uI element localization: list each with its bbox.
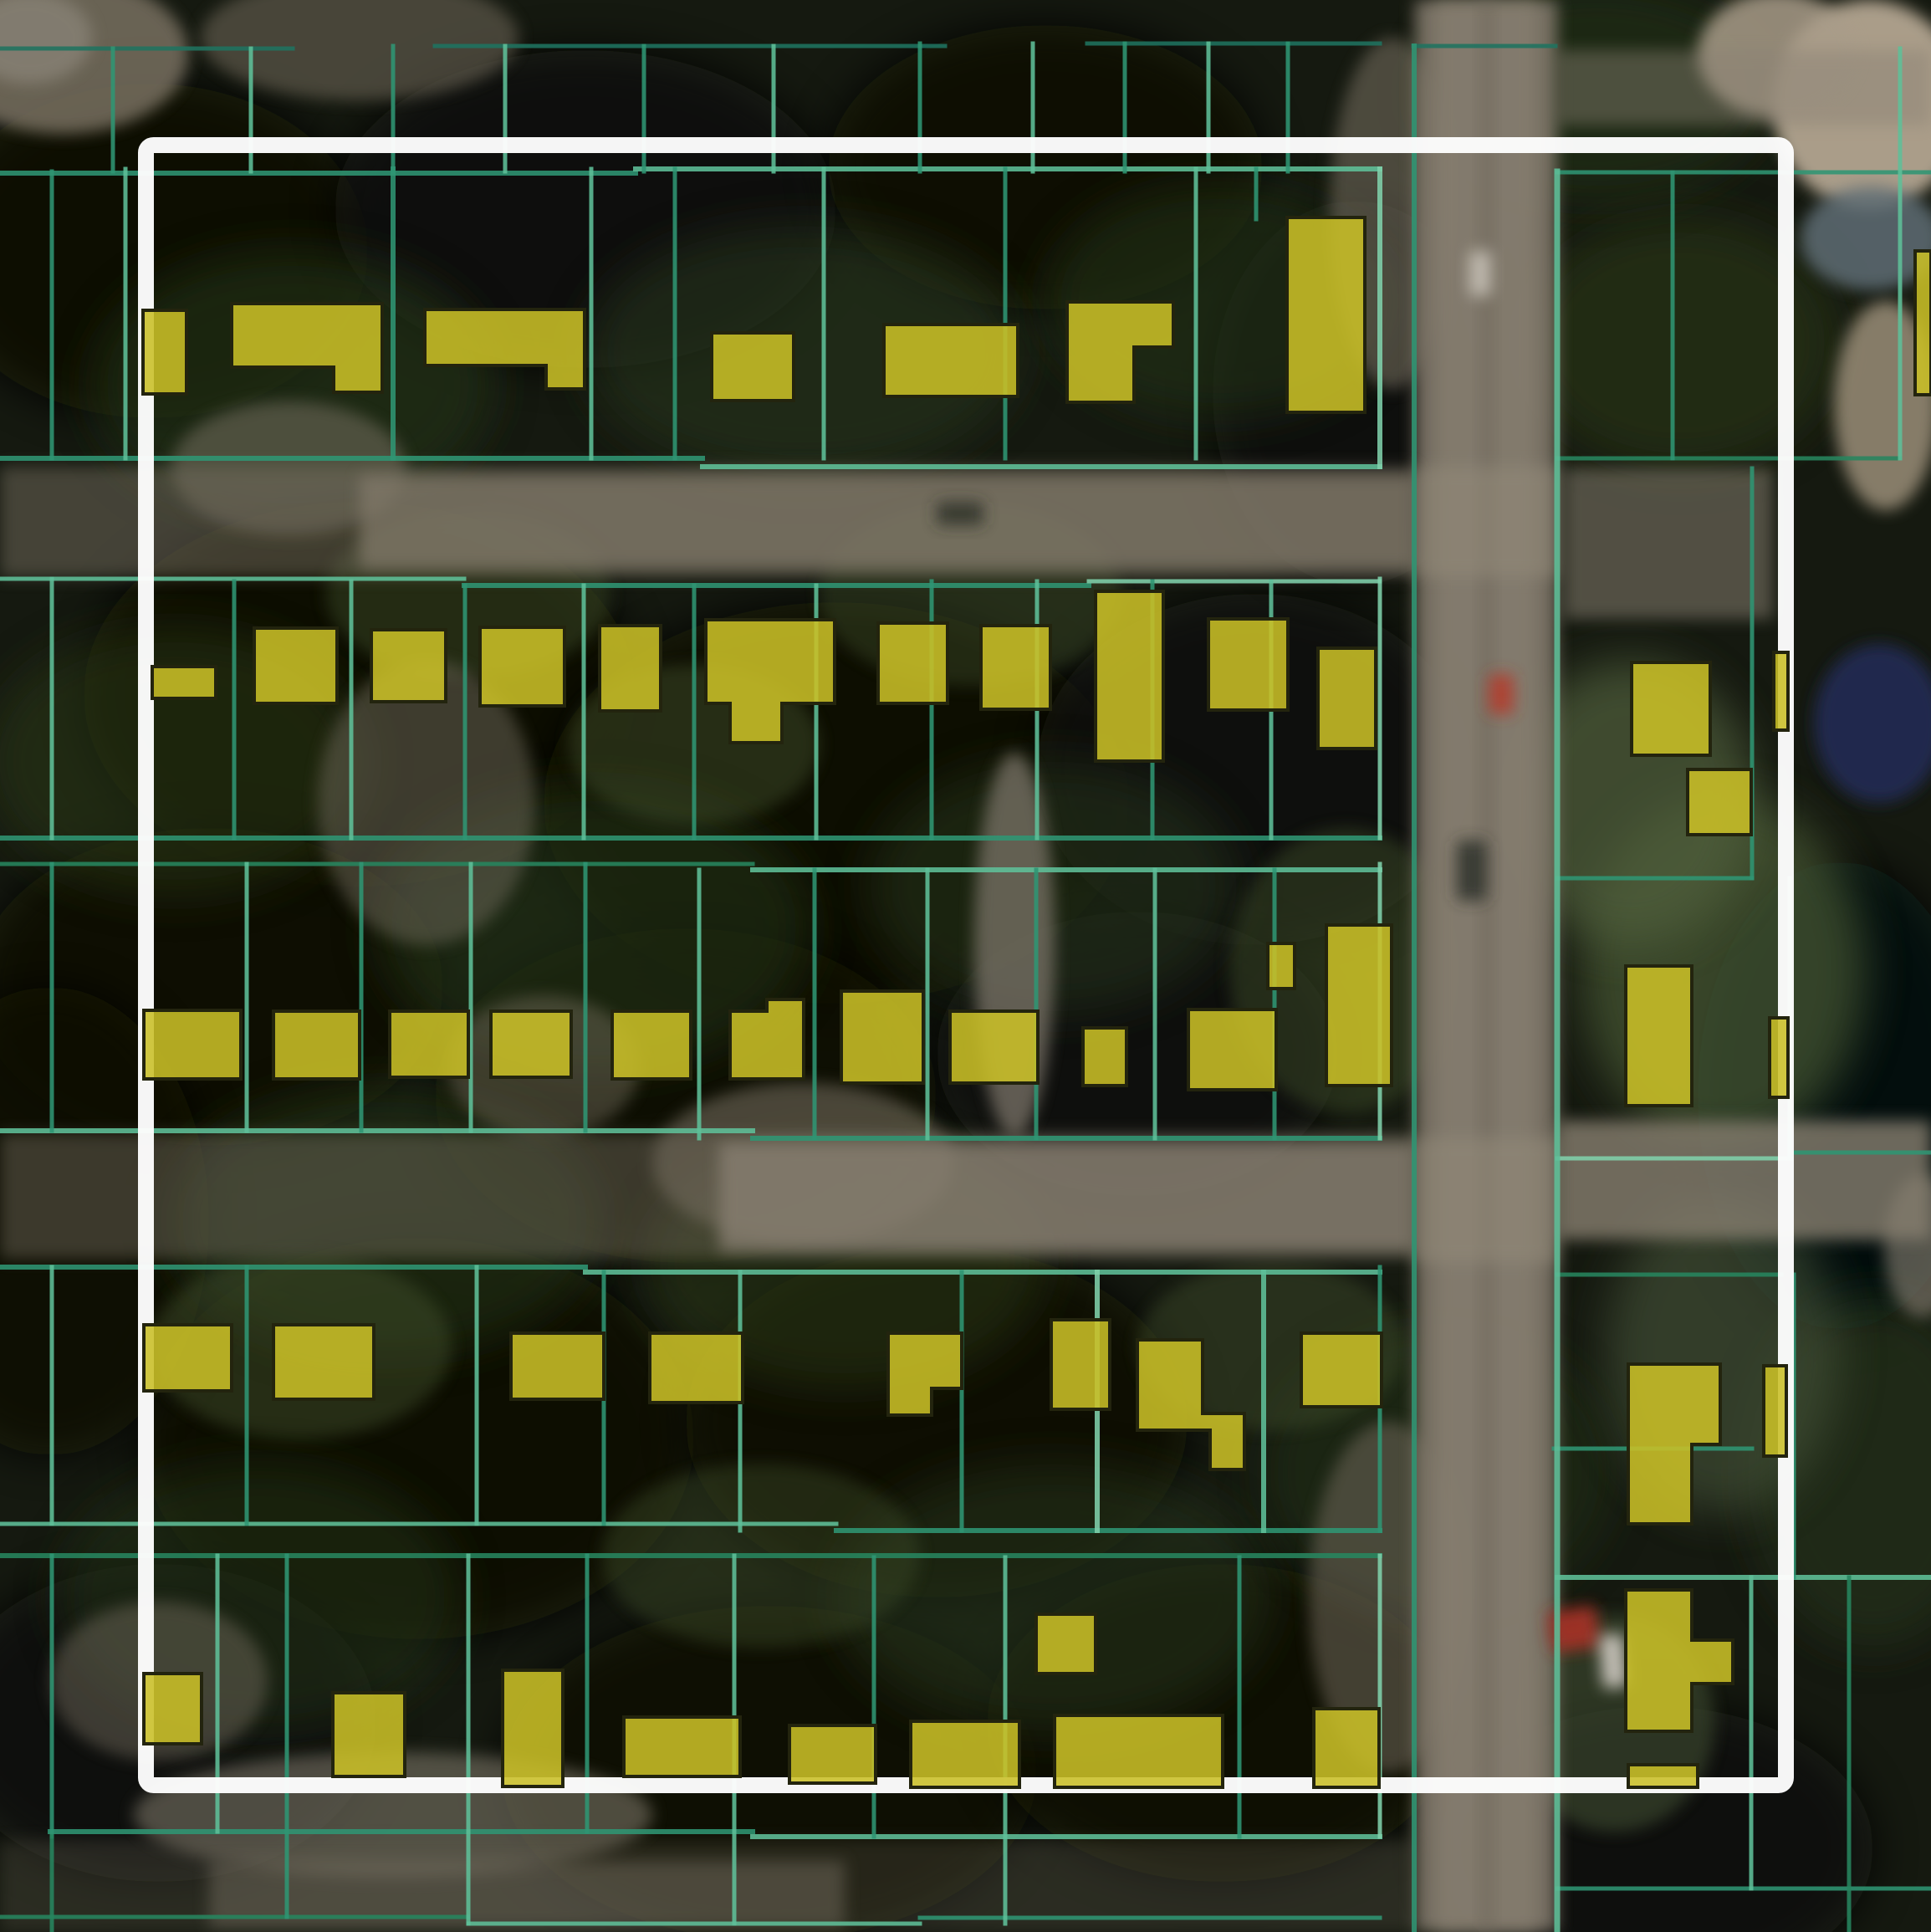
building-footprint[interactable] (1774, 652, 1788, 730)
building-footprint[interactable] (624, 1717, 740, 1776)
building-footprint[interactable] (730, 999, 804, 1079)
road-surface (1415, 1137, 1557, 1263)
building-footprint[interactable] (1915, 251, 1931, 395)
map-stage (0, 0, 1931, 1932)
building-footprint[interactable] (333, 1693, 405, 1776)
map-canvas[interactable] (0, 0, 1931, 1932)
building-footprint[interactable] (1268, 943, 1295, 989)
building-footprint[interactable] (144, 1325, 232, 1391)
building-footprint[interactable] (878, 623, 948, 703)
building-footprint[interactable] (503, 1670, 563, 1786)
building-footprint[interactable] (1626, 966, 1692, 1106)
building-footprint[interactable] (911, 1721, 1019, 1787)
building-footprint[interactable] (600, 626, 661, 711)
building-footprint[interactable] (1318, 648, 1376, 749)
building-footprint[interactable] (1688, 769, 1751, 835)
building-footprint[interactable] (390, 1011, 468, 1077)
building-footprint[interactable] (981, 626, 1050, 709)
vehicle-marker (1469, 251, 1491, 296)
building-footprint[interactable] (254, 628, 337, 703)
road-surface (1557, 1121, 1931, 1239)
building-footprint[interactable] (152, 667, 216, 698)
road-surface (1557, 50, 1931, 125)
building-footprint[interactable] (1632, 662, 1710, 755)
building-footprint[interactable] (1287, 217, 1365, 412)
building-footprint[interactable] (1188, 1009, 1276, 1090)
building-footprint[interactable] (712, 333, 794, 401)
vehicle-marker (1489, 674, 1514, 714)
building-footprint[interactable] (884, 325, 1018, 396)
building-footprint[interactable] (143, 310, 186, 394)
building-footprint[interactable] (144, 1674, 202, 1744)
building-footprint[interactable] (1764, 1366, 1786, 1456)
building-footprint[interactable] (371, 630, 446, 702)
vehicle-marker (1457, 841, 1487, 901)
building-footprint[interactable] (1083, 1028, 1126, 1086)
building-footprint[interactable] (1055, 1715, 1223, 1787)
building-footprint[interactable] (1628, 1765, 1698, 1787)
building-footprint[interactable] (841, 991, 923, 1083)
building-footprint[interactable] (144, 1010, 241, 1079)
building-footprint[interactable] (1051, 1320, 1110, 1409)
building-footprint[interactable] (1301, 1333, 1382, 1407)
building-footprint[interactable] (480, 627, 564, 706)
building-footprint[interactable] (1326, 925, 1392, 1086)
building-footprint[interactable] (1096, 591, 1163, 761)
building-footprint[interactable] (491, 1011, 571, 1077)
road-surface (719, 1142, 1415, 1251)
vehicle-marker (1598, 1633, 1627, 1689)
road-surface (360, 475, 1415, 569)
road-surface (1564, 468, 1773, 619)
building-footprint[interactable] (511, 1333, 604, 1399)
vehicle-marker (937, 502, 983, 525)
road-surface (1415, 467, 1557, 577)
building-footprint[interactable] (950, 1011, 1038, 1083)
building-footprint[interactable] (273, 1011, 360, 1079)
building-footprint[interactable] (650, 1333, 743, 1403)
building-footprint[interactable] (1314, 1709, 1379, 1787)
building-footprint[interactable] (789, 1725, 876, 1783)
building-footprint[interactable] (612, 1011, 691, 1079)
building-footprint[interactable] (1208, 619, 1288, 710)
building-footprint[interactable] (273, 1325, 374, 1399)
building-footprint[interactable] (1036, 1614, 1096, 1674)
building-footprint[interactable] (1770, 1018, 1788, 1097)
